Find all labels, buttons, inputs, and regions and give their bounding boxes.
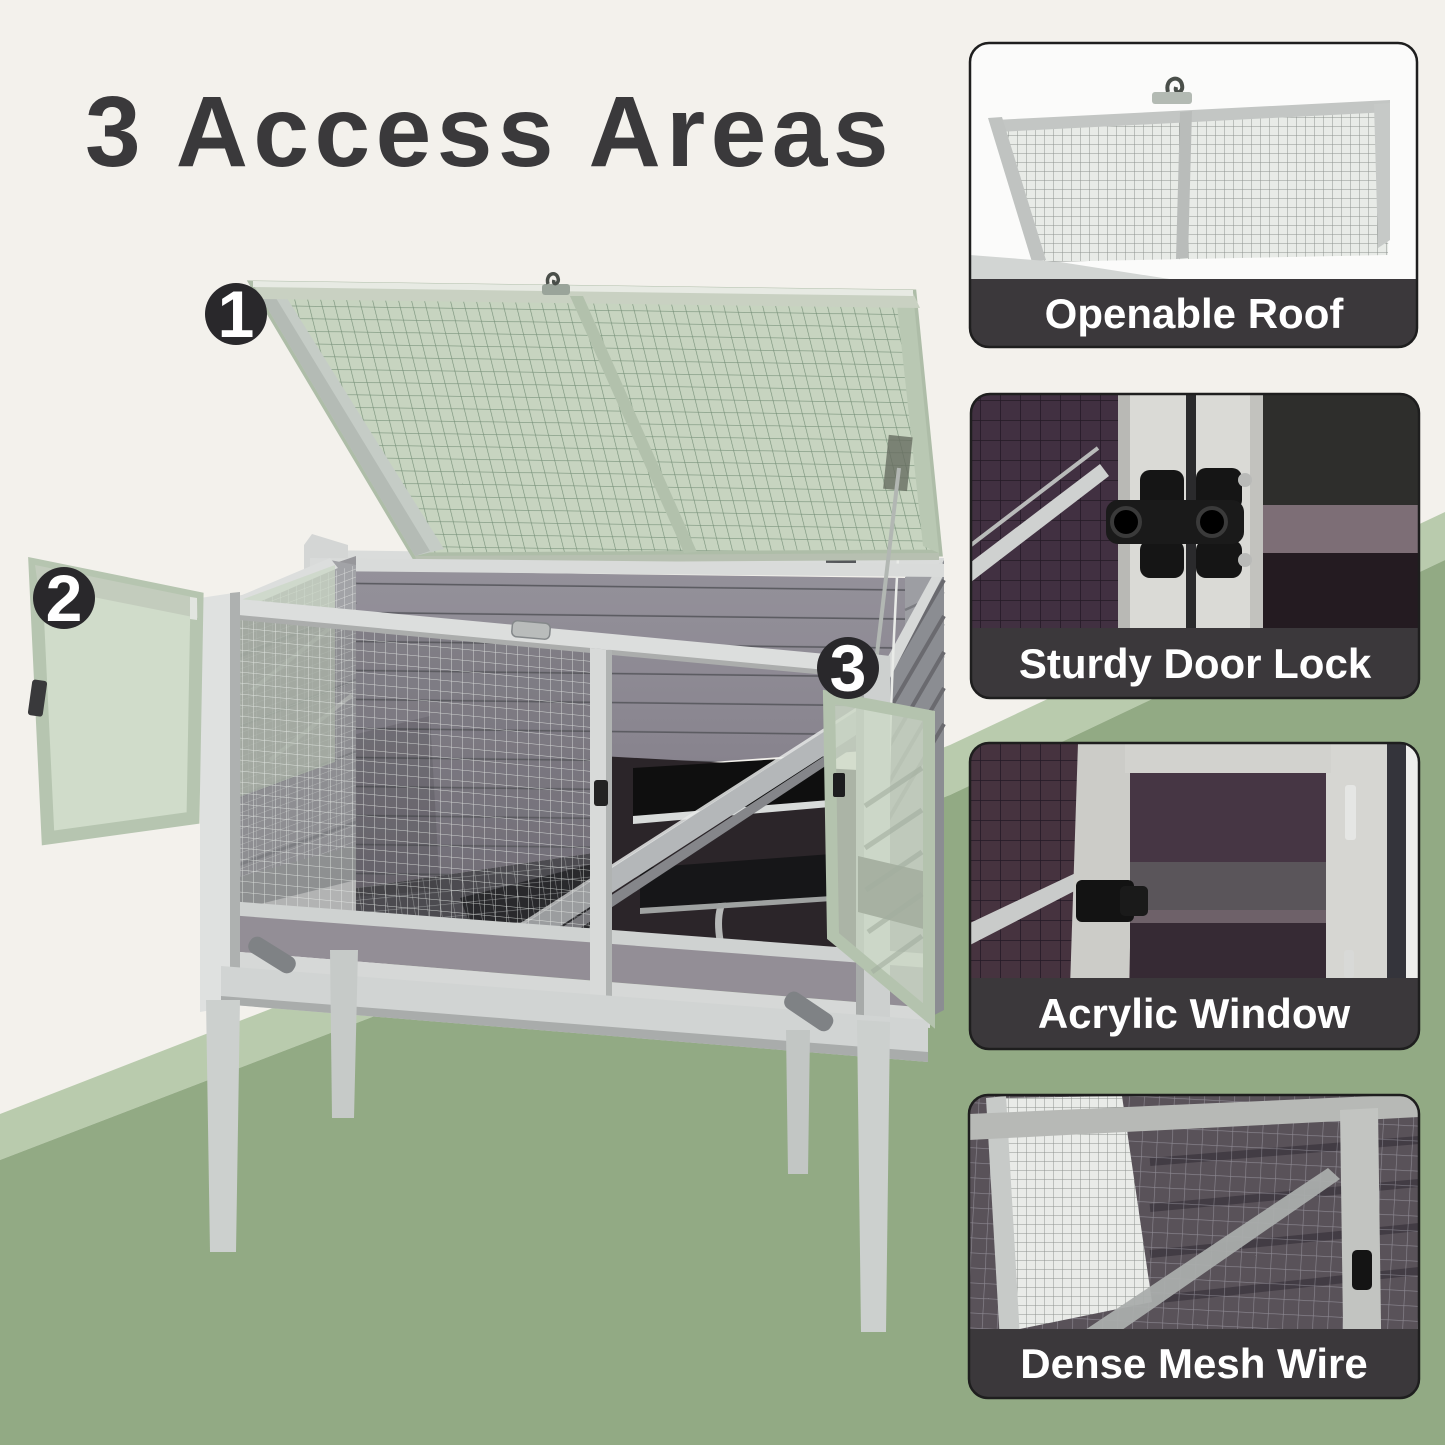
svg-text:Acrylic Window: Acrylic Window bbox=[1038, 990, 1351, 1037]
svg-text:3: 3 bbox=[830, 631, 867, 705]
svg-text:2: 2 bbox=[46, 561, 83, 635]
svg-text:Sturdy Door Lock: Sturdy Door Lock bbox=[1019, 640, 1372, 687]
svg-text:3 Access Areas: 3 Access Areas bbox=[85, 76, 894, 188]
svg-text:Dense Mesh Wire: Dense Mesh Wire bbox=[1020, 1340, 1367, 1387]
svg-text:1: 1 bbox=[218, 277, 255, 351]
svg-text:Openable Roof: Openable Roof bbox=[1045, 290, 1345, 337]
